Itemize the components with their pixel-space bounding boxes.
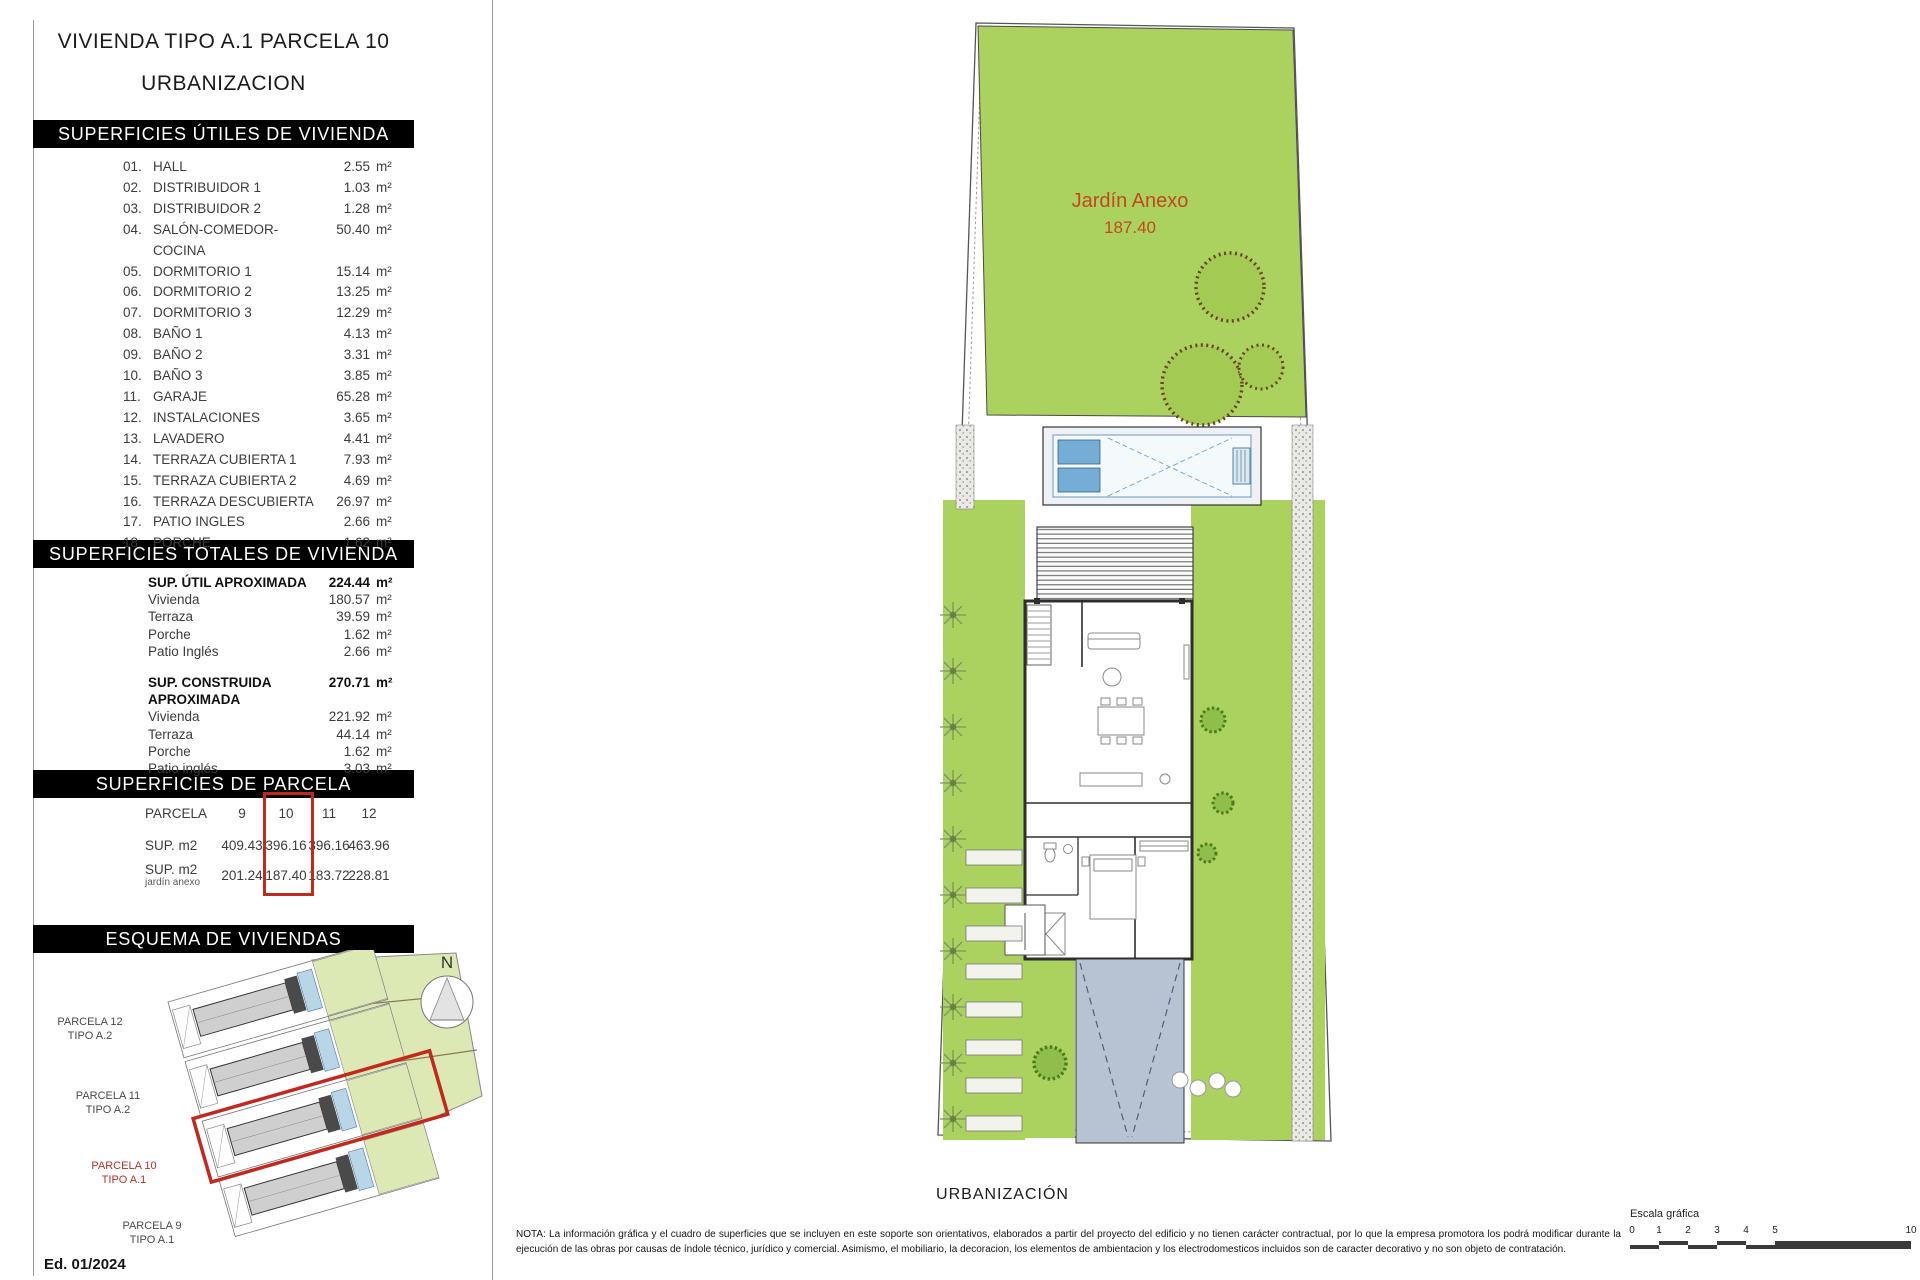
- house-floorplan: [1025, 598, 1192, 959]
- room-value: 2.55: [318, 157, 370, 178]
- room-label: BAÑO 3: [153, 366, 318, 387]
- table-row: 11.GARAJE65.28m²: [33, 387, 414, 408]
- total-label: Patio Inglés: [148, 643, 314, 660]
- room-number: 07.: [123, 303, 153, 324]
- parcela-jardin-value: 201.24: [221, 868, 262, 883]
- highlighted-parcela-10-box: [263, 792, 314, 896]
- room-value: 3.85: [318, 366, 370, 387]
- room-number: 12.: [123, 408, 153, 429]
- room-label: TERRAZA CUBIERTA 1: [153, 450, 318, 471]
- north-label: N: [441, 953, 453, 972]
- table-row: 05.DORMITORIO 115.14m²: [33, 262, 414, 283]
- table-row: 10.BAÑO 33.85m²: [33, 366, 414, 387]
- room-value: 26.97: [318, 492, 370, 513]
- tree-icon: [1196, 253, 1264, 321]
- bush-icon: [1213, 793, 1233, 813]
- total-unit: m²: [370, 574, 402, 591]
- room-value: 1.03: [318, 178, 370, 199]
- room-label: DISTRIBUIDOR 2: [153, 199, 318, 220]
- driveway: [1076, 959, 1184, 1143]
- parcela-column-header: 12: [361, 806, 376, 821]
- table-row: 12.INSTALACIONES3.65m²: [33, 408, 414, 429]
- gravel-strip-left: [956, 425, 974, 509]
- room-unit: m²: [370, 324, 402, 345]
- table-row: 17.PATIO INGLES2.66m²: [33, 512, 414, 533]
- room-unit: m²: [370, 178, 402, 199]
- room-label: INSTALACIONES: [153, 408, 318, 429]
- tree-icon: [1239, 345, 1283, 389]
- total-value: 180.57: [314, 591, 370, 608]
- total-row: Porche1.62m²: [33, 743, 414, 760]
- room-value: 3.65: [318, 408, 370, 429]
- parcela-column-header: 11: [322, 806, 336, 821]
- scale-tick: 1: [1656, 1225, 1662, 1236]
- total-unit: m²: [370, 643, 402, 660]
- table-row: 15.TERRAZA CUBIERTA 24.69m²: [33, 471, 414, 492]
- room-unit: m²: [370, 429, 402, 450]
- total-label: Vivienda: [148, 591, 314, 608]
- scale-tick: 2: [1685, 1225, 1691, 1236]
- room-unit: m²: [370, 366, 402, 387]
- room-value: 13.25: [318, 282, 370, 303]
- bush-icon: [1201, 708, 1225, 732]
- room-label: BAÑO 2: [153, 345, 318, 366]
- total-row: Vivienda221.92m²: [33, 708, 414, 725]
- bush-icon: [1198, 844, 1216, 862]
- scale-tick: 4: [1743, 1225, 1749, 1236]
- stairs: [1027, 605, 1051, 665]
- room-label: TERRAZA DESCUBIERTA: [153, 492, 318, 513]
- total-label: Patio inglés: [148, 760, 314, 777]
- room-value: 4.41: [318, 429, 370, 450]
- total-row: Terraza39.59m²: [33, 608, 414, 625]
- parcela-sup-value: 396.16: [308, 838, 349, 853]
- table-row: 08.BAÑO 14.13m²: [33, 324, 414, 345]
- section-header-superficies-utiles: SUPERFICIES ÚTILES DE VIVIENDA: [33, 120, 414, 148]
- total-group-title: SUP. CONSTRUIDA APROXIMADA270.71m²: [33, 674, 414, 708]
- total-row: Patio inglés3.03m²: [33, 760, 414, 777]
- tree-icon: [1162, 345, 1242, 425]
- room-value: 3.31: [318, 345, 370, 366]
- room-label: LAVADERO: [153, 429, 318, 450]
- total-label: Terraza: [148, 726, 314, 743]
- total-value: 2.66: [314, 643, 370, 660]
- total-group-title: SUP. ÚTIL APROXIMADA224.44m²: [33, 574, 414, 591]
- room-surfaces-list: 01.HALL2.55m² 02.DISTRIBUIDOR 11.03m² 03…: [33, 157, 414, 554]
- total-value: 224.44: [314, 574, 370, 591]
- room-number: 10.: [123, 366, 153, 387]
- total-value: 3.03: [314, 760, 370, 777]
- room-number: 18.: [123, 533, 153, 554]
- scale-label: Escala gráfica: [1630, 1208, 1699, 1220]
- room-label: PATIO INGLES: [153, 512, 318, 533]
- room-number: 04.: [123, 220, 153, 262]
- room-number: 14.: [123, 450, 153, 471]
- graphic-scale: Escala gráfica 0 1 2 3 4 5 10: [1630, 1208, 1920, 1254]
- page-subtitle: URBANIZACION: [33, 72, 414, 96]
- room-value: 15.14: [318, 262, 370, 283]
- room-number: 05.: [123, 262, 153, 283]
- room-label: BAÑO 1: [153, 324, 318, 345]
- plan-sheet: { "page": { "title1": "VIVIENDA TIPO A.1…: [0, 0, 1920, 1280]
- room-value: 1.28: [318, 199, 370, 220]
- room-unit: m²: [370, 471, 402, 492]
- room-unit: m²: [370, 220, 402, 262]
- legal-note: NOTA: La información gráfica y el cuadro…: [516, 1228, 1621, 1258]
- total-row: Vivienda180.57m²: [33, 591, 414, 608]
- total-value: 221.92: [314, 708, 370, 725]
- room-label: GARAJE: [153, 387, 318, 408]
- total-label: Porche: [148, 626, 314, 643]
- room-unit: m²: [370, 199, 402, 220]
- total-unit: m²: [370, 726, 402, 743]
- room-number: 15.: [123, 471, 153, 492]
- total-row: Terraza44.14m²: [33, 726, 414, 743]
- room-unit: m²: [370, 492, 402, 513]
- total-label: Terraza: [148, 608, 314, 625]
- room-unit: m²: [370, 262, 402, 283]
- table-row: 02.DISTRIBUIDOR 11.03m²: [33, 178, 414, 199]
- room-number: 09.: [123, 345, 153, 366]
- room-unit: m²: [370, 450, 402, 471]
- parcela-row-label: SUP. m2: [145, 838, 197, 853]
- bush-icon: [1034, 1047, 1066, 1079]
- esquema-site-diagram: N: [120, 950, 493, 1280]
- total-unit: m²: [370, 608, 402, 625]
- table-row: 01.HALL2.55m²: [33, 157, 414, 178]
- scale-tick: 3: [1714, 1225, 1720, 1236]
- pool-steps: [1233, 448, 1250, 484]
- room-number: 02.: [123, 178, 153, 199]
- edition-date: Ed. 01/2024: [44, 1256, 126, 1273]
- total-row: Porche1.62m²: [33, 626, 414, 643]
- pergola-deck: [1037, 527, 1193, 601]
- total-unit: m²: [370, 626, 402, 643]
- room-value: 50.40: [318, 220, 370, 262]
- total-value: 1.62: [314, 626, 370, 643]
- room-value: 65.28: [318, 387, 370, 408]
- total-value: 39.59: [314, 608, 370, 625]
- parcela-row-sublabel: jardín anexo: [145, 877, 200, 888]
- room-label: DORMITORIO 3: [153, 303, 318, 324]
- room-number: 06.: [123, 282, 153, 303]
- total-label: SUP. CONSTRUIDA APROXIMADA: [148, 674, 314, 708]
- parcela-row-label: SUP. m2: [145, 862, 197, 877]
- plan-caption: URBANIZACIÓN: [930, 1186, 1075, 1204]
- room-unit: m²: [370, 157, 402, 178]
- room-unit: m²: [370, 282, 402, 303]
- room-label: DORMITORIO 1: [153, 262, 318, 283]
- room-number: 08.: [123, 324, 153, 345]
- totals-list: SUP. ÚTIL APROXIMADA224.44m² Vivienda180…: [33, 574, 414, 777]
- annex-garden-value: 187.40: [1104, 218, 1156, 237]
- room-number: 03.: [123, 199, 153, 220]
- table-row: 04.SALÓN-COMEDOR-COCINA50.40m²: [33, 220, 414, 262]
- table-row: 06.DORMITORIO 213.25m²: [33, 282, 414, 303]
- total-unit: m²: [370, 591, 402, 608]
- scale-tick: 5: [1772, 1225, 1778, 1236]
- room-unit: m²: [370, 512, 402, 533]
- table-row: 09.BAÑO 23.31m²: [33, 345, 414, 366]
- section-header-esquema: ESQUEMA DE VIVIENDAS: [33, 925, 414, 953]
- room-number: 17.: [123, 512, 153, 533]
- room-value: 4.13: [318, 324, 370, 345]
- parcela-jardin-value: 228.81: [348, 868, 389, 883]
- room-label: TERRAZA CUBIERTA 2: [153, 471, 318, 492]
- room-number: 16.: [123, 492, 153, 513]
- room-label: DORMITORIO 2: [153, 282, 318, 303]
- parcela-jardin-value: 183.72: [308, 868, 349, 883]
- parcela-column-header: 9: [238, 806, 246, 821]
- total-unit: m²: [370, 674, 402, 708]
- room-label: HALL: [153, 157, 318, 178]
- table-row: 13.LAVADERO4.41m²: [33, 429, 414, 450]
- room-value: 4.69: [318, 471, 370, 492]
- gravel-strip-right: [1292, 425, 1313, 1141]
- site-plan-drawing: Jardín Anexo 187.40: [930, 15, 1350, 1165]
- table-row: 07.DORMITORIO 312.29m²: [33, 303, 414, 324]
- room-value: 1.62: [318, 533, 370, 554]
- total-row: Patio Inglés2.66m²: [33, 643, 414, 660]
- scale-tick: 10: [1905, 1225, 1916, 1236]
- room-unit: m²: [370, 387, 402, 408]
- total-label: Porche: [148, 743, 314, 760]
- table-row: 03.DISTRIBUIDOR 21.28m²: [33, 199, 414, 220]
- total-unit: m²: [370, 708, 402, 725]
- total-label: Vivienda: [148, 708, 314, 725]
- table-row: 16.TERRAZA DESCUBIERTA26.97m²: [33, 492, 414, 513]
- room-value: 2.66: [318, 512, 370, 533]
- page-title: VIVIENDA TIPO A.1 PARCELA 10: [33, 30, 414, 54]
- room-number: 11.: [123, 387, 153, 408]
- room-unit: m²: [370, 533, 402, 554]
- total-value: 1.62: [314, 743, 370, 760]
- total-unit: m²: [370, 760, 402, 777]
- parcela-sup-value: 409.43: [221, 838, 262, 853]
- total-value: 270.71: [314, 674, 370, 708]
- scale-bar: [1630, 1241, 1911, 1249]
- table-row: 14.TERRAZA CUBIERTA 17.93m²: [33, 450, 414, 471]
- total-unit: m²: [370, 743, 402, 760]
- room-label: PORCHE: [153, 533, 318, 554]
- room-label: SALÓN-COMEDOR-COCINA: [153, 220, 318, 262]
- room-unit: m²: [370, 303, 402, 324]
- annex-garden-label: Jardín Anexo: [1072, 190, 1189, 212]
- room-value: 12.29: [318, 303, 370, 324]
- room-unit: m²: [370, 408, 402, 429]
- pool: [1043, 427, 1261, 505]
- scale-tick: 0: [1629, 1225, 1635, 1236]
- total-label: SUP. ÚTIL APROXIMADA: [148, 574, 314, 591]
- parcela-row-label: PARCELA: [145, 806, 207, 821]
- room-value: 7.93: [318, 450, 370, 471]
- room-number: 13.: [123, 429, 153, 450]
- table-row: 18.PORCHE1.62m²: [33, 533, 414, 554]
- room-unit: m²: [370, 345, 402, 366]
- room-label: DISTRIBUIDOR 1: [153, 178, 318, 199]
- room-number: 01.: [123, 157, 153, 178]
- parcela-sup-value: 463.96: [348, 838, 389, 853]
- total-value: 44.14: [314, 726, 370, 743]
